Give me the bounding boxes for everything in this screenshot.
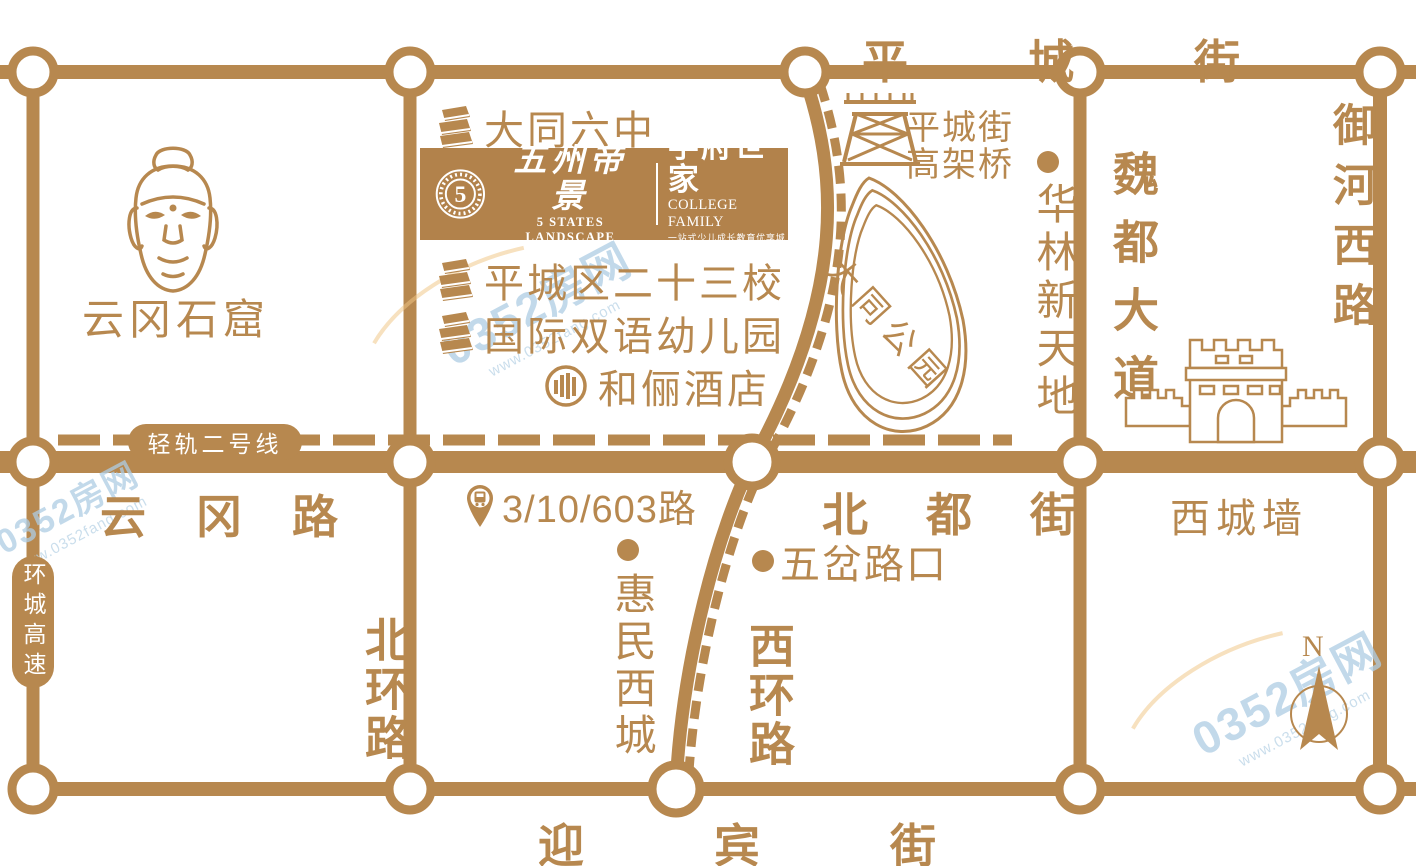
buddha-icon [112, 142, 234, 294]
poi-label-hualin: 华林新天地 [1024, 182, 1085, 422]
poi-school23: 平城区二十三校 [436, 251, 785, 309]
poi-wucha: 五岔路口 [752, 532, 948, 590]
huancheng-expressway-badge: 环城高速 [12, 556, 54, 688]
road-label-yungang-road: 云冈路 [100, 481, 388, 547]
books-icon [436, 104, 474, 150]
books-icon [436, 257, 474, 303]
poi-label-yungang-grottoes: 云冈石窟 [82, 286, 270, 347]
poi-heli-hotel: 和俪酒店 [544, 357, 770, 415]
poi-label-viaduct-2: 高架桥 [906, 137, 1014, 186]
city-wall-icon [1124, 326, 1348, 444]
poi-label-kindergarten: 国际双语幼儿园 [484, 304, 785, 362]
light-rail-badge: 轻轨二号线 [128, 424, 302, 460]
compass-north-label: N [1302, 630, 1324, 664]
poi-label-bus-routes: 3/10/603路 [502, 478, 697, 533]
brand-logo-mark: 5 [454, 182, 466, 208]
road-label-yuhe-west-road: 御河西路 [1318, 102, 1382, 342]
brand-slogan: 一站式少儿成长教育优享城邦 [668, 231, 788, 257]
road-label-yingbin-street: 迎宾街 [538, 810, 1066, 866]
poi-dot-hualin [1037, 151, 1059, 173]
brand-sub-block: 学府世家 COLLEGE FAMILY 一站式少儿成长教育优享城邦 [668, 131, 788, 256]
brand-banner: 5 五州帝景 5 STATES LANDSCAPE 学府世家 COLLEGE F… [420, 148, 788, 240]
brand-sub-en: COLLEGE FAMILY [668, 197, 788, 231]
poi-label-xicheng-wall: 西城墙 [1170, 486, 1308, 544]
road-label-xihuan-road: 西环路 [736, 622, 802, 769]
poi-label-wucha: 五岔路口 [780, 532, 948, 590]
hotel-icon [544, 364, 588, 408]
location-map: 0352房网 www.0352fang.com 0352房网 www.0352f… [0, 0, 1416, 866]
brand-sub-cn: 学府世家 [668, 131, 788, 196]
books-icon [436, 310, 474, 356]
poi-dot-huimin [617, 539, 639, 561]
poi-label-heli-hotel: 和俪酒店 [598, 357, 770, 415]
poi-bus-routes: 3/10/603路 [464, 478, 697, 533]
compass-icon [1286, 662, 1352, 758]
brand-en-name: 5 STATES LANDSCAPE [497, 215, 644, 245]
poi-dot-wucha [752, 550, 774, 572]
road-label-pingcheng-street: 平城街 [862, 26, 1360, 92]
poi-label-huimin: 惠民西城 [602, 572, 663, 760]
brand-name-block: 五州帝景 5 STATES LANDSCAPE [497, 143, 644, 246]
road-label-beihuan-road: 北环路 [352, 616, 418, 763]
bus-pin-icon [464, 483, 496, 529]
brand-logo-icon: 5 [434, 165, 487, 223]
brand-cn-name: 五州帝景 [497, 143, 644, 216]
poi-kindergarten: 国际双语幼儿园 [436, 304, 785, 362]
poi-label-school23: 平城区二十三校 [484, 251, 785, 309]
banner-divider [656, 163, 658, 225]
